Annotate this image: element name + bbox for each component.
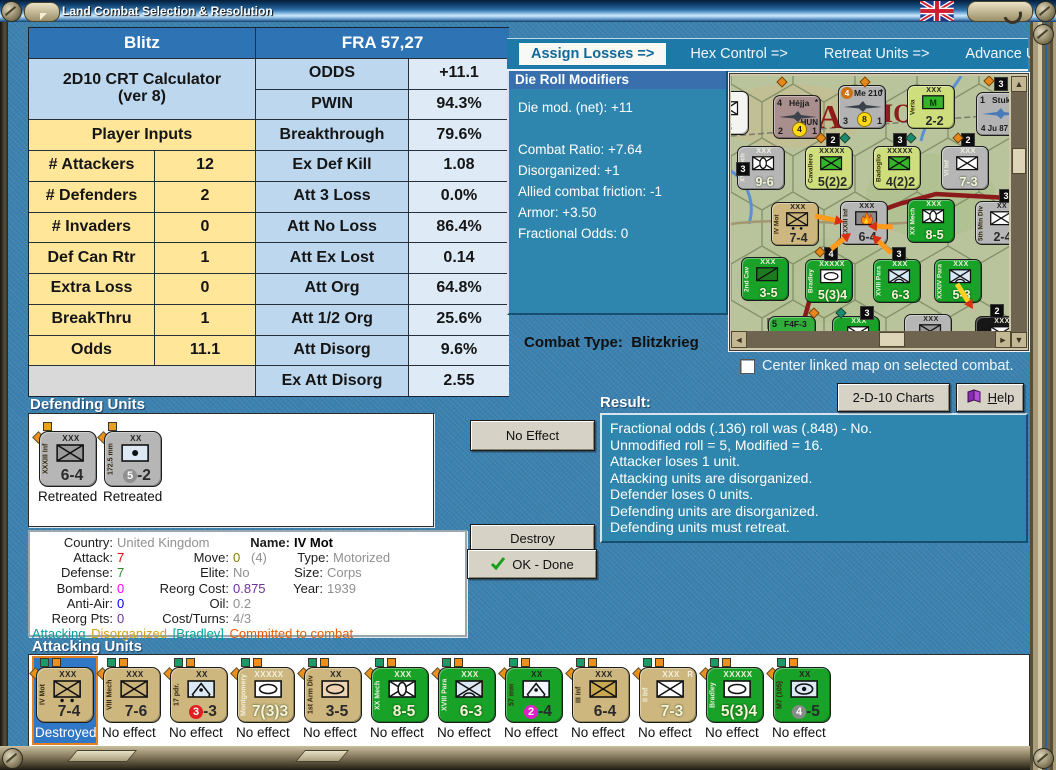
unit-counter-5th-mtn-div[interactable]: XX5th Mtn Div2-4	[975, 201, 1009, 245]
unit-flag: R	[687, 670, 693, 679]
crt-input-label: # Defenders	[29, 182, 154, 212]
move-value: 0	[233, 550, 251, 565]
unit-strength: 2-4	[984, 230, 1009, 244]
unit-name: I Inf	[834, 320, 842, 331]
crt-output-label: Att No Loss	[256, 213, 408, 243]
unit-counter-bradley[interactable]: XXXXXBradley5(3)4	[805, 259, 853, 303]
unit-result-label: Retreated	[103, 489, 162, 504]
unit-size: XXX	[914, 201, 954, 208]
map-panel: RAIOR34Héjja*HUN2414Me 210*381XXXVeriaM2…	[728, 72, 1030, 352]
crt-input-label: # Attackers	[29, 151, 154, 181]
result-line: Unmodified roll = 5, Modified = 16.	[610, 437, 1018, 454]
unit-symbol-mech-icon	[752, 156, 774, 175]
crt-output-value: 0.14	[409, 243, 509, 273]
unit-symbol-inf-icon	[731, 101, 738, 120]
crt-input-label: BreakThru	[29, 305, 154, 335]
size-label: Size:	[283, 565, 327, 580]
unit-size: XXX	[948, 148, 988, 155]
map-horizontal-scrollbar[interactable]: ◄ ►	[731, 331, 1011, 348]
attacking-unit-slot-57-mm[interactable]: XX57 mm2-4No effect	[503, 658, 565, 743]
crt-calc-title: 2D10 CRT Calculator(ver 8)	[29, 59, 255, 120]
unit-counter-xx-mech[interactable]: XXXXX Mech8-5	[907, 199, 955, 243]
oil-value: 0.2	[233, 596, 253, 611]
hex-stack-badge: 3	[893, 133, 907, 147]
unit-counter-xxxiv-para[interactable]: XXXXXXIV Para5-3	[934, 259, 982, 303]
die-roll-modifiers-panel: Die Roll Modifiers Die mod. (net): +11 C…	[507, 68, 728, 315]
reorg-cost-label: Reorg Cost:	[147, 581, 233, 596]
window-frame-right	[1030, 22, 1056, 770]
air-unit-me-210[interactable]: 4Me 210*381	[838, 85, 886, 129]
tab-retreat-units[interactable]: Retreat Units =>	[812, 43, 942, 65]
unit-symbol-inf-icon	[56, 444, 84, 468]
status-dots	[643, 658, 664, 667]
unit-size: XXX	[982, 318, 1009, 325]
crt-input-value: 2	[155, 182, 255, 212]
unit-size: R	[731, 93, 748, 100]
unit-strength: 7-3	[649, 703, 695, 721]
unit-size: XX	[311, 670, 361, 679]
unit-symbol-armor-icon	[321, 680, 349, 704]
unit-strength: 6-4	[582, 703, 628, 721]
defense-label: Defense:	[30, 565, 117, 580]
no-effect-button[interactable]: No Effect	[470, 420, 595, 451]
reorg-pts-label: Reorg Pts:	[30, 611, 117, 626]
defending-unit-slot-172-5-mm: XX172.5 mm5-2Retreated	[102, 422, 164, 507]
unit-counter-2nd-cav[interactable]: XXX2nd Cav3-5	[741, 257, 789, 301]
window-frame-left	[0, 22, 8, 746]
attacking-units-label: Attacking Units	[32, 638, 142, 655]
crt-input-label: Def Can Rtr	[29, 243, 154, 273]
die-mod-line: Fractional Odds: 0	[518, 223, 717, 244]
air-val-left: 3	[843, 116, 848, 126]
unit-size: XXXXX	[880, 148, 920, 155]
antiair-value: 0	[117, 596, 147, 611]
unit-counter-xxxiii-inf[interactable]: XXXXXXIII Inf6-4	[840, 201, 888, 245]
air-name: Me 210	[854, 88, 882, 98]
air-val-circle: 8	[857, 112, 872, 127]
air-count: 4	[841, 87, 853, 99]
air-val-left: 2	[778, 126, 783, 136]
unit-counter-montgomery[interactable]: XXXXXMontgomery7(3)3	[237, 667, 295, 723]
crt-output-value: 2.55	[409, 366, 509, 396]
attacking-unit-slot-xviii-para[interactable]: XXXXVIII Para6-3No effect	[436, 658, 498, 743]
svg-text:M: M	[929, 98, 936, 108]
unit-symbol-para-icon	[888, 269, 910, 288]
unit-counter-iv-mot[interactable]: XXXIV Mot7-4	[771, 202, 819, 246]
unit-size: XXX	[579, 670, 629, 679]
unit-counter-172-5-mm[interactable]: XX172.5 mm5-2	[104, 431, 162, 487]
hex-stack-badge: 3	[994, 77, 1008, 91]
unit-counter-1st-arm-div[interactable]: XX1st Arm Div3-5	[304, 667, 362, 723]
unit-counter-xxxiii-inf[interactable]: XXXXXXIII Inf6-4	[39, 431, 97, 487]
unit-counter-unit[interactable]: R3	[731, 91, 749, 135]
unit-size: XXXXX	[713, 670, 763, 679]
crt-output-label: Ex Def Kill	[256, 151, 408, 181]
hex-stack-badge: 2	[990, 304, 1004, 318]
move-paren: (4)	[251, 550, 285, 565]
name-label: Name:	[234, 535, 294, 550]
result-line: Fractional odds (.136) roll was (.848) -…	[610, 420, 1018, 437]
unit-symbol-at-icon	[522, 680, 550, 704]
cost-turns-label: Cost/Turns:	[147, 611, 233, 626]
status-dots	[710, 658, 731, 667]
air-unit-h-jja[interactable]: 4Héjja*HUN241	[773, 95, 821, 139]
unit-counter-57-mm[interactable]: XX57 mm2-4	[505, 667, 563, 723]
result-line: Defender loses 0 units.	[610, 486, 1018, 503]
unit-counter-badoglio[interactable]: XXXXXBadoglio4(2)2	[873, 146, 921, 190]
unit-symbol-para-icon	[949, 269, 971, 288]
die-mod-line: Armor: +3.50	[518, 202, 717, 223]
air-val-circle: 4	[792, 122, 807, 137]
air-val-right: 1	[812, 126, 817, 136]
help-button[interactable]: Help	[956, 383, 1024, 412]
attacking-unit-slot-xx-mech[interactable]: XXXXX Mech8-5No effect	[369, 658, 431, 743]
unit-symbol-para-icon	[455, 680, 483, 704]
crt-input-value: 0	[155, 274, 255, 304]
unit-counter-17-pdr[interactable]: XX17 pdr.3-3	[170, 667, 228, 723]
status-dots	[43, 422, 52, 431]
unit-strength: 5-2	[114, 467, 160, 485]
unit-strength: 9-6	[746, 175, 783, 189]
reorg-pts-value: 0	[117, 611, 147, 626]
crt-output-label: Ex Att Disorg	[256, 366, 408, 396]
crt-calc-title-line: 2D10 CRT Calculator	[63, 72, 221, 89]
unit-strength: 6-4	[49, 467, 95, 485]
unit-counter-cavallero[interactable]: XXXXXCavallero5(2)2	[805, 146, 853, 190]
attack-label: Attack:	[30, 550, 117, 565]
vertical-scroll-thumb[interactable]	[1012, 148, 1026, 174]
unit-strength: 3-3	[180, 703, 226, 721]
crt-output-value: 64.8%	[409, 274, 509, 304]
status-dots	[509, 658, 530, 667]
unit-symbol-m-icon: M	[922, 95, 944, 114]
map-vertical-scrollbar[interactable]: ▲ ▼	[1011, 76, 1027, 348]
unit-size: XXX	[378, 670, 428, 679]
unit-size: XXX	[911, 316, 951, 323]
unit-size: XXX	[110, 670, 160, 679]
unit-symbol-spart-icon	[790, 680, 818, 704]
unit-counter-iv-mot[interactable]: XXXIV Mot7-4	[36, 667, 94, 723]
window-menu-button[interactable]	[24, 2, 60, 22]
no-effect-label: No Effect	[506, 428, 559, 443]
air-star: *	[880, 87, 883, 97]
spacer	[518, 118, 717, 139]
status-committed: Committed to combat	[230, 626, 356, 641]
air-val-right: 1	[877, 116, 882, 126]
air-star: *	[815, 97, 818, 107]
center-map-option: Center linked map on selected combat.	[740, 358, 1013, 374]
attacking-unit-slot-1st-arm-div[interactable]: XX1st Arm Div3-5No effect	[302, 658, 364, 743]
air-count: 5	[772, 319, 777, 329]
unit-result-label: No effect	[169, 725, 223, 740]
tab-hex-control[interactable]: Hex Control =>	[678, 43, 800, 65]
checkmark-icon	[490, 556, 506, 573]
year-label: Year:	[287, 581, 327, 596]
country-label: Country:	[30, 535, 117, 550]
scroll-right-button[interactable]: ►	[995, 331, 1011, 348]
combat-type: Combat Type: Blitzkrieg	[524, 334, 699, 351]
charts-button[interactable]: 2-D-10 Charts	[837, 383, 950, 412]
close-button[interactable]	[967, 1, 1033, 22]
crt-output-value: 86.4%	[409, 213, 509, 243]
unit-symbol-mech-icon	[388, 680, 416, 704]
crt-output-label: ODDS	[256, 59, 408, 89]
unit-symbol-art-icon	[121, 444, 149, 468]
phase-tab-bar: Assign Losses => Hex Control => Retreat …	[507, 38, 1028, 71]
window-title: Land Combat Selection & Resolution	[62, 4, 273, 18]
oil-label: Oil:	[147, 596, 233, 611]
unit-strength: 7-4	[46, 703, 92, 721]
unit-counter-xviii-para[interactable]: XXXXVIII Para6-3	[873, 259, 921, 303]
status-dots	[40, 658, 61, 667]
attacking-unit-slot-bradley[interactable]: XXXXXBradley5(3)4No effect	[704, 658, 766, 743]
attacking-units-panel: XXXIV Mot7-4DestroyedXXXVIII Mech7-6No e…	[28, 654, 1030, 748]
defending-unit-slot-xxxiii-inf: XXXXXXIII Inf6-4Retreated	[37, 422, 99, 507]
crt-left-header: Blitz	[29, 28, 255, 58]
frame-stripe	[295, 750, 349, 762]
type-value: Motorized	[333, 550, 392, 565]
unit-name: Min	[977, 320, 985, 331]
unit-strength: 6-3	[448, 703, 494, 721]
status-dots	[241, 658, 262, 667]
crt-input-label: Odds	[29, 336, 154, 366]
screw-icon	[1033, 24, 1054, 45]
unit-symbol-inf-icon	[820, 156, 842, 175]
unit-symbol-inf-icon	[888, 156, 910, 175]
unit-symbol-inf-icon	[847, 326, 869, 331]
crt-input-value: 11.1	[155, 336, 255, 366]
map-view[interactable]: RAIOR34Héjja*HUN2414Me 210*381XXXVeriaM2…	[731, 76, 1009, 331]
reorg-cost-value: 0.875	[233, 581, 287, 596]
unit-counter-unit[interactable]: XXX	[904, 314, 952, 331]
unit-strength: 2-2	[916, 114, 953, 128]
die-mod-net: Die mod. (net): +11	[518, 97, 717, 118]
status-dots	[308, 658, 329, 667]
bombard-value: 0	[117, 581, 147, 596]
unit-strength: 4(2)2	[882, 175, 919, 189]
unit-symbol-mech-icon	[922, 209, 944, 228]
result-box: Fractional odds (.136) roll was (.848) -…	[600, 413, 1028, 543]
hex-stack-badge: 3	[892, 247, 906, 261]
crt-output-value: +11.1	[409, 59, 509, 89]
screw-icon	[1033, 748, 1054, 769]
status-dots	[107, 658, 128, 667]
unit-symbol-inf-icon	[919, 324, 941, 331]
unit-strength: 6-4	[849, 230, 886, 244]
status-dots	[174, 658, 195, 667]
window-frame-bottom	[0, 746, 1030, 770]
unit-info-panel: Country: United Kingdom Name: IV Mot Att…	[28, 530, 467, 637]
air-name: Stuka	[992, 95, 1009, 105]
die-mod-line: Allied combat friction: -1	[518, 181, 717, 202]
unit-size: XXX	[43, 670, 93, 679]
crt-output-value: 0.0%	[409, 182, 509, 212]
crt-output-label: Att 3 Loss	[256, 182, 408, 212]
defending-units-panel: XXXXXXIII Inf6-4RetreatedXX172.5 mm5-2Re…	[28, 413, 434, 527]
result-line: Defending units are disorganized.	[610, 503, 1018, 520]
unit-size: XX	[512, 670, 562, 679]
unit-size: XX	[177, 670, 227, 679]
unit-size: XX	[982, 203, 1009, 210]
unit-strength: 5-3	[943, 288, 980, 302]
hex-stack-badge: 3	[999, 189, 1009, 203]
air-unit-stuka[interactable]: 1Stuka4 Ju 87	[976, 92, 1009, 136]
hex-stack-badge: 2	[961, 133, 975, 147]
unit-size: XXXXX	[812, 261, 852, 268]
center-map-checkbox[interactable]	[740, 359, 755, 374]
unit-counter-iii-inf[interactable]: XXXIII Inf6-4	[572, 667, 630, 723]
title-bar[interactable]: Land Combat Selection & Resolution	[0, 0, 1056, 22]
crt-input-value: 1	[155, 305, 255, 335]
crt-output-label: PWIN	[256, 90, 408, 120]
attacking-unit-slot-17-pdr[interactable]: XX17 pdr.3-3No effect	[168, 658, 230, 743]
attacking-unit-slot-viii-mech[interactable]: XXXVIII Mech7-6No effect	[101, 658, 163, 743]
unit-strength: 3-5	[750, 286, 787, 300]
scroll-down-button[interactable]: ▼	[1011, 332, 1027, 348]
crt-input-value: 0	[155, 213, 255, 243]
crt-input-value: 12	[155, 151, 255, 181]
crt-player-inputs-header: Player Inputs	[29, 120, 255, 150]
unit-counter-vi-inf[interactable]: XXXVI Inf7-3	[941, 146, 989, 190]
air-name: Héjja	[789, 98, 809, 108]
defense-value: 7	[117, 565, 147, 580]
unit-size: XXX	[914, 87, 954, 94]
status-dots	[442, 658, 463, 667]
land-combat-window: Land Combat Selection & Resolution Blitz…	[0, 0, 1056, 770]
attacking-unit-slot-m7-105[interactable]: XXM7 (105)4-5No effect	[771, 658, 833, 743]
unit-result-label: No effect	[236, 725, 290, 740]
name-value: IV Mot	[294, 535, 335, 550]
combat-type-label: Combat Type:	[524, 334, 623, 351]
bombard-label: Bombard:	[30, 581, 117, 596]
destroy-label: Destroy	[510, 531, 555, 546]
screw-icon	[1035, 1, 1056, 22]
status-dots	[576, 658, 597, 667]
attacking-unit-slot-montgomery[interactable]: XXXXXMontgomery7(3)3No effect	[235, 658, 297, 743]
unit-strength: 7-4	[780, 231, 817, 245]
unit-counter-ii-inf[interactable]: XXXRII Inf7-3	[639, 667, 697, 723]
unit-result-label: Retreated	[38, 489, 97, 504]
unit-result-label: No effect	[705, 725, 759, 740]
unit-strength: 8-5	[381, 703, 427, 721]
unit-symbol-inf-icon	[589, 680, 617, 704]
crt-output-value: 9.6%	[409, 336, 509, 366]
crt-output-value: 79.6%	[409, 120, 509, 150]
unit-counter-xx-mech[interactable]: XXXXX Mech8-5	[371, 667, 429, 723]
unit-size: XX	[111, 434, 161, 443]
result-line: Defending units must retreat.	[610, 519, 1018, 536]
ok-done-button[interactable]: OK - Done	[467, 549, 597, 579]
crt-output-label: Att Disorg	[256, 336, 408, 366]
result-label: Result:	[600, 394, 651, 411]
unit-strength: 3-5	[314, 703, 360, 721]
unit-symbol-fire-icon	[855, 211, 877, 230]
horizontal-scroll-thumb[interactable]	[879, 332, 905, 347]
unit-strength: 7-6	[113, 703, 159, 721]
unit-result-label: No effect	[102, 725, 156, 740]
crt-output-label: Att Org	[256, 274, 408, 304]
defending-units-label: Defending Units	[30, 396, 145, 413]
antiair-label: Anti-Air:	[30, 596, 117, 611]
unit-size: XXX	[941, 261, 981, 268]
attacking-unit-slot-iii-inf[interactable]: XXXIII Inf6-4No effect	[570, 658, 632, 743]
cost-turns-value: 4/3	[233, 611, 253, 626]
combat-type-value: Blitzkrieg	[631, 334, 699, 351]
status-dots	[375, 658, 396, 667]
unit-size: XXX	[778, 204, 818, 211]
air-count: 1	[980, 95, 985, 105]
status-dots	[108, 422, 117, 431]
unit-size: XXXXX	[812, 148, 852, 155]
unit-strength: 5(3)4	[716, 703, 762, 721]
unit-strength: 6-3	[882, 288, 919, 302]
arrow-icon	[33, 6, 47, 20]
crt-output-label: Att 1/2 Org	[256, 305, 408, 335]
die-roll-modifiers-title: Die Roll Modifiers	[509, 70, 726, 89]
air-unit-f4f-3[interactable]: 5F4F-3	[768, 316, 816, 331]
unit-result-label: No effect	[303, 725, 357, 740]
unit-counter-bradley[interactable]: XXXXXBradley5(3)4	[706, 667, 764, 723]
crt-output-label: Breakthrough	[256, 120, 408, 150]
unit-symbol-inf-icon	[990, 211, 1009, 230]
unit-strength: 5(2)2	[814, 175, 851, 189]
size-value: Corps	[327, 565, 364, 580]
unit-size: XXX	[445, 670, 495, 679]
unit-name	[906, 318, 914, 331]
attacking-unit-slot-ii-inf[interactable]: XXXRII Inf7-3No effect	[637, 658, 699, 743]
unit-strength: 4-5	[783, 703, 829, 721]
aircraft-icon	[981, 107, 1009, 122]
air-name: F4F-3	[784, 319, 807, 329]
frame-stripe	[67, 750, 137, 762]
help-button-label: Help	[988, 390, 1015, 405]
crt-output-label: Att Ex Lost	[256, 243, 408, 273]
unit-strength: 7-3	[950, 175, 987, 189]
unit-symbol-inf-icon	[956, 156, 978, 175]
unit-symbol-cav-icon	[756, 267, 778, 286]
crt-input-label: # Invaders	[29, 213, 154, 243]
unit-size: XXX	[748, 259, 788, 266]
attacking-unit-slot-iv-mot[interactable]: XXXIV Mot7-4Destroyed	[34, 658, 96, 743]
hex-stack-badge: 2	[826, 133, 840, 147]
unit-counter-m7-105[interactable]: XXM7 (105)4-5	[773, 667, 831, 723]
elite-label: Elite:	[147, 565, 233, 580]
unit-symbol-inf-icon	[990, 326, 1009, 331]
unit-result-label: No effect	[571, 725, 625, 740]
uk-flag-icon	[920, 1, 954, 26]
crt-output-value: 25.6%	[409, 305, 509, 335]
tab-assign-losses[interactable]: Assign Losses =>	[519, 43, 666, 65]
unit-strength: 2-4	[515, 703, 561, 721]
unit-counter-min[interactable]: XXXMin	[975, 316, 1009, 331]
scroll-up-button[interactable]: ▲	[1011, 76, 1027, 92]
unit-counter-veria[interactable]: XXXVeriaM2-2	[907, 85, 955, 129]
unit-result-label: No effect	[772, 725, 826, 740]
ok-done-label: OK - Done	[512, 557, 573, 572]
status-dots	[777, 658, 798, 667]
unit-symbol-hq-icon	[820, 269, 842, 288]
screw-icon	[1, 1, 22, 22]
move-label: Move:	[147, 550, 233, 565]
unit-symbol-at-icon	[187, 680, 215, 704]
unit-counter-viii-mech[interactable]: XXXVIII Mech7-6	[103, 667, 161, 723]
scroll-left-button[interactable]: ◄	[731, 331, 747, 348]
screw-icon	[2, 748, 23, 769]
unit-counter-xviii-para[interactable]: XXXXVIII Para6-3	[438, 667, 496, 723]
unit-size: XX	[780, 670, 830, 679]
crt-output-value: 1.08	[409, 151, 509, 181]
unit-strength: 7(3)3	[247, 703, 293, 721]
